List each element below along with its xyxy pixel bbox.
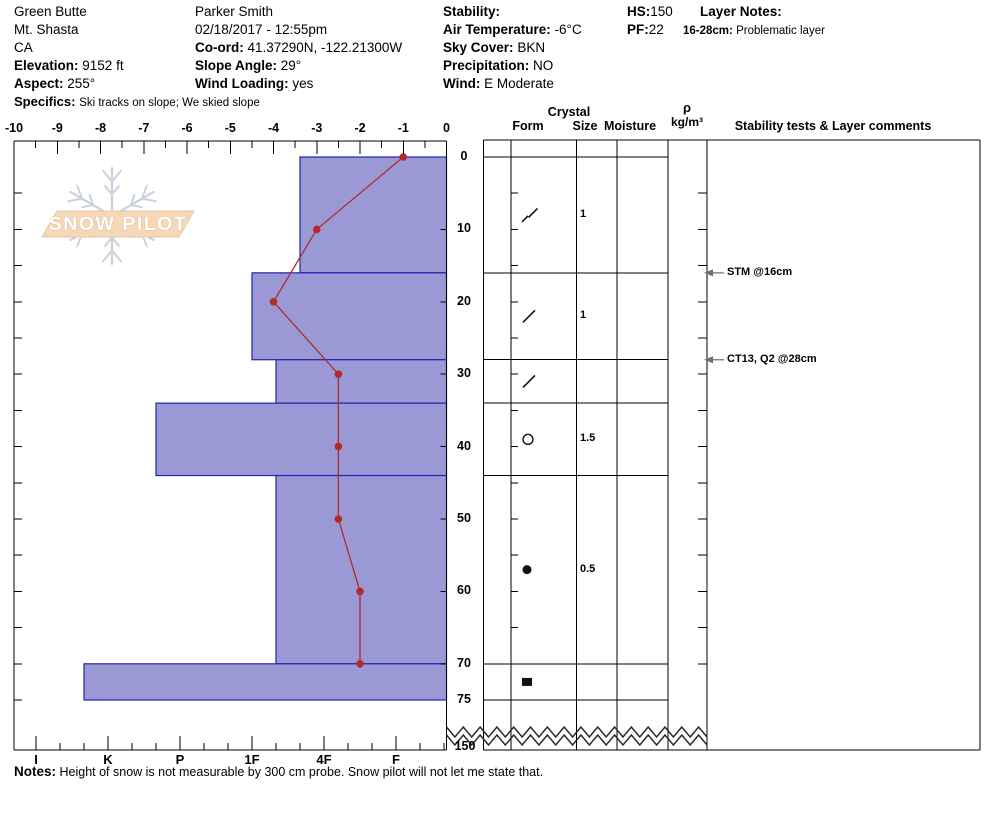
profile-table-grid: [484, 140, 981, 750]
slope-angle-value: 29°: [281, 58, 301, 73]
aspect-value: 255°: [67, 76, 95, 91]
temperature-point: [335, 370, 343, 378]
notes-label: Notes:: [14, 764, 56, 779]
layer-note-range: 16-28cm:: [683, 25, 733, 37]
grain-filled-circle: [523, 565, 532, 574]
elevation-value: 9152 ft: [82, 58, 123, 73]
precipitation: Precipitation: NO: [443, 58, 553, 73]
left-arrow-icon: [704, 269, 713, 276]
pf-label: PF:: [627, 22, 649, 37]
slope-angle-label: Slope Angle:: [195, 58, 277, 73]
wind-label: Wind:: [443, 76, 480, 91]
left-arrow-icon: [704, 356, 713, 363]
grain-open-circle: [523, 434, 533, 444]
col-header-density-units: kg/m³: [671, 115, 703, 129]
snow-layer-bar: [84, 664, 447, 700]
col-header-form: Form: [512, 119, 543, 133]
site-state: CA: [14, 40, 33, 55]
observation-datetime: 02/18/2017 - 12:55pm: [195, 22, 327, 37]
col-header-crystal: Crystal: [548, 105, 590, 119]
logo-text: SNOW PILOT: [49, 213, 188, 235]
aspect-label: Aspect:: [14, 76, 64, 91]
col-header-density-symbol: ρ: [683, 100, 691, 115]
snow-layer-bar: [252, 273, 447, 360]
specifics-label: Specifics:: [14, 94, 75, 109]
sky-cover-value: BKN: [517, 40, 545, 55]
elevation-label: Elevation:: [14, 58, 79, 73]
observer-name: Parker Smith: [195, 4, 273, 19]
temperature-point: [335, 443, 343, 451]
wind: Wind: E Moderate: [443, 76, 554, 91]
wind-loading-label: Wind Loading:: [195, 76, 289, 91]
snow-layer-bar: [276, 360, 447, 403]
site-specifics: Specifics: Ski tracks on slope; We skied…: [14, 94, 260, 109]
notes-text: Height of snow is not measurable by 300 …: [60, 765, 544, 779]
temperature-point: [399, 153, 407, 161]
stability-label: Stability:: [443, 4, 500, 19]
wind-loading-value: yes: [292, 76, 313, 91]
layer-notes-title: Layer Notes:: [700, 4, 782, 19]
sky-cover-label: Sky Cover:: [443, 40, 514, 55]
col-header-size: Size: [572, 119, 597, 133]
snow-layer-bar: [300, 157, 447, 273]
temperature-point: [270, 298, 278, 306]
precip-label: Precipitation:: [443, 58, 529, 73]
snow-layer-bar: [156, 403, 447, 475]
layer-notes-label: Layer Notes:: [700, 4, 782, 19]
sky-cover: Sky Cover: BKN: [443, 40, 545, 55]
wind-loading: Wind Loading: yes: [195, 76, 313, 91]
snow-layer-bar: [276, 476, 447, 664]
col-header-moisture: Moisture: [604, 119, 656, 133]
temperature-point: [356, 588, 364, 596]
site-elevation: Elevation: 9152 ft: [14, 58, 124, 73]
layer-note-entry: 16-28cm: Problematic layer: [683, 25, 825, 37]
coord-label: Co-ord:: [195, 40, 244, 55]
height-of-snow: HS:150: [627, 4, 673, 19]
layer-note-text: Problematic layer: [736, 25, 825, 37]
site-aspect: Aspect: 255°: [14, 76, 95, 91]
stability-field: Stability:: [443, 4, 500, 19]
hs-label: HS:: [627, 4, 650, 19]
coord-value: 41.37290N, -122.21300W: [248, 40, 403, 55]
site-name: Green Butte: [14, 4, 87, 19]
air-temp-value: -6°C: [555, 22, 582, 37]
coordinates: Co-ord: 41.37290N, -122.21300W: [195, 40, 402, 55]
hardness-bars: [84, 157, 447, 700]
grain-filled-square: [522, 678, 532, 686]
hs-value: 150: [650, 4, 673, 19]
wind-value: E Moderate: [484, 76, 554, 91]
snowpilot-profile-page: SNOW PILOT -10-9-8-7-6-5-4-3-2-10IKP1F4F…: [0, 0, 994, 840]
snowpilot-logo: SNOW PILOT: [42, 168, 194, 264]
temperature-point: [313, 226, 321, 234]
slope-angle: Slope Angle: 29°: [195, 58, 301, 73]
precip-value: NO: [533, 58, 553, 73]
pf-value: 22: [649, 22, 664, 37]
grain-form-symbols: [522, 208, 538, 685]
air-temp-label: Air Temperature:: [443, 22, 551, 37]
specifics-value: Ski tracks on slope; We skied slope: [79, 97, 260, 109]
pit-depth: PF:22: [627, 22, 664, 37]
temperature-point: [335, 515, 343, 523]
notes-line: Notes: Height of snow is not measurable …: [14, 764, 543, 779]
site-region: Mt. Shasta: [14, 22, 79, 37]
temperature-point: [356, 660, 364, 668]
col-header-stability-tests: Stability tests & Layer comments: [735, 119, 932, 133]
air-temperature: Air Temperature: -6°C: [443, 22, 582, 37]
